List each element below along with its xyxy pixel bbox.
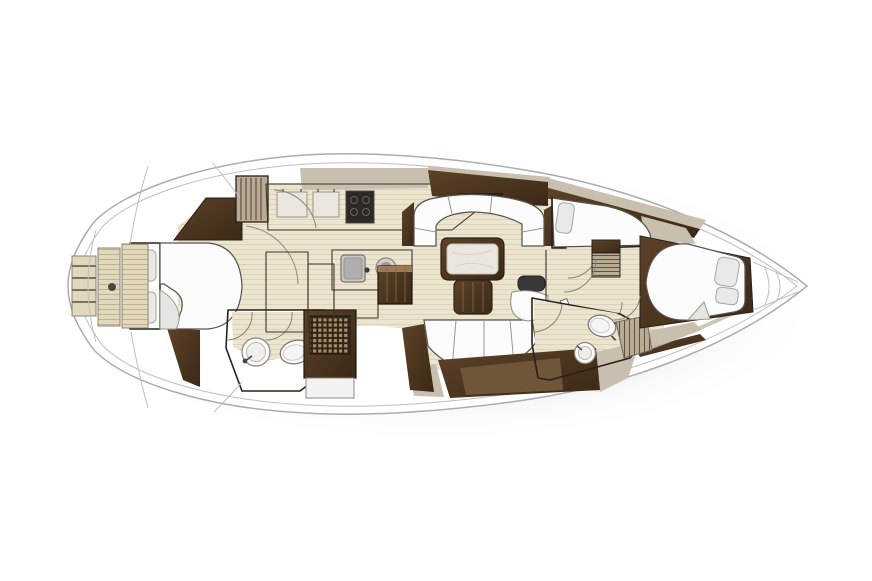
nav-seat [518, 276, 545, 291]
vberth-pillow-2 [715, 287, 739, 306]
corridor-chest-top [592, 240, 620, 253]
swim-platform [72, 244, 148, 328]
dinette-table-top [447, 244, 498, 274]
yacht-floor-plan-svg [0, 0, 872, 581]
shower-pan [306, 378, 354, 398]
shower-grate [310, 316, 350, 354]
transom-step-2 [122, 244, 148, 328]
transom-hatch-handle [108, 283, 116, 291]
galley-sink-basin [344, 258, 362, 279]
companionway-steps-lip [378, 266, 412, 272]
corridor-chest [592, 253, 620, 277]
galley-locker-2 [313, 192, 339, 217]
aft-head-faucet-base [243, 359, 248, 364]
vberth-pillow-1 [714, 256, 741, 287]
trim-top-center [300, 168, 428, 190]
stove [346, 191, 374, 223]
galley-faucet [364, 267, 369, 272]
galley-locker-1 [277, 192, 307, 217]
guest-pillow [555, 202, 575, 234]
shower [304, 310, 356, 398]
yacht-floor-plan [0, 0, 872, 581]
